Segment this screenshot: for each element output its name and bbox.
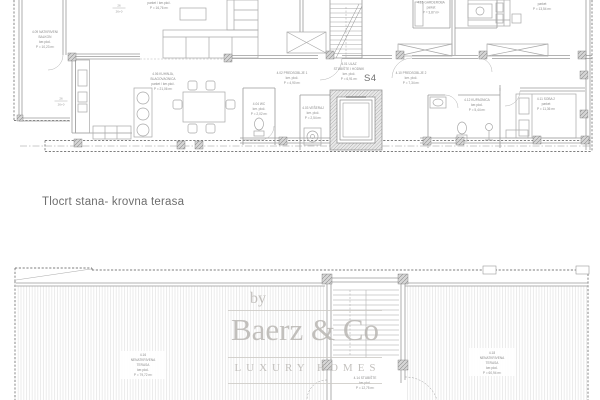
svg-text:P = 3,87 m²: P = 3,87 m² <box>423 11 440 15</box>
dim-1: 26 26+0 <box>113 4 126 14</box>
svg-text:parket / ker.ploč.: parket / ker.ploč. <box>151 82 175 86</box>
kitchen-counter <box>76 60 90 133</box>
svg-text:P = 11,36 m²: P = 11,36 m² <box>537 107 555 111</box>
svg-text:4.11 SOBA 2: 4.11 SOBA 2 <box>537 97 555 101</box>
unit-label: S4 <box>364 73 376 84</box>
room-label-predsoblje1: 4.02 PREDSOBLJE 1 ker. ploč. P = 4,90 m² <box>277 71 308 85</box>
svg-text:ker. ploč.: ker. ploč. <box>286 76 299 80</box>
svg-text:4.01 ULAZ: 4.01 ULAZ <box>341 62 356 66</box>
room-label-predsoblje2: 4.10 PREDSOBLJE 2 ker. ploč. P = 7,34 m² <box>396 71 427 85</box>
dresser <box>468 4 492 18</box>
coffee-table <box>180 8 206 20</box>
svg-text:parket / ker.ploč.: parket / ker.ploč. <box>147 1 171 5</box>
upper-room-labels: parket / ker.ploč. P = 16,76 m² 4.09 NAT… <box>32 1 555 121</box>
svg-text:P = 2,54 m²: P = 2,54 m² <box>305 116 322 120</box>
svg-text:P = 10,23 m²: P = 10,23 m² <box>36 45 54 49</box>
kitchen-island <box>134 88 152 137</box>
elevator-shaft <box>330 90 382 150</box>
svg-text:P = 79,72 m²: P = 79,72 m² <box>134 373 152 377</box>
svg-text:P = 13,54 m²: P = 13,54 m² <box>533 7 551 11</box>
room-label-ulaz: 4.01 ULAZ STUBIŠTE I HODNIK ker. ploč. P… <box>334 62 366 81</box>
svg-text:ker.ploč.: ker.ploč. <box>471 103 483 107</box>
svg-text:4.02 PREDSOBLJE 1: 4.02 PREDSOBLJE 1 <box>277 71 308 75</box>
room-label-living: parket / ker.ploč. P = 16,76 m² <box>147 1 171 10</box>
svg-text:BALKON: BALKON <box>39 35 53 39</box>
svg-text:parket: parket <box>427 6 436 10</box>
dimension-labels: 26 26+0 26 26+0 <box>55 4 126 107</box>
svg-text:4.14 STUBIŠTE: 4.14 STUBIŠTE <box>354 375 377 380</box>
apartment-floor-plan: parket / ker.ploč. P = 16,76 m² 4.09 NAT… <box>0 0 600 165</box>
wc-toilet <box>254 118 264 136</box>
svg-text:26: 26 <box>117 4 121 8</box>
svg-text:4.16: 4.16 <box>140 353 146 357</box>
svg-text:4.06 KUHINJA,: 4.06 KUHINJA, <box>152 72 174 76</box>
svg-text:P = 5,44 m²: P = 5,44 m² <box>469 108 486 112</box>
svg-text:ker. ploč.: ker. ploč. <box>253 107 266 111</box>
svg-text:NENATKRIVENA: NENATKRIVENA <box>480 356 505 360</box>
svg-text:4.15 GARDEROBA: 4.15 GARDEROBA <box>417 1 445 5</box>
room-label-balkon: 4.09 NATKRIVENI BALKON ker.ploč. P = 10,… <box>32 30 58 49</box>
svg-text:4.18: 4.18 <box>489 351 495 355</box>
svg-text:P = 4,90 m²: P = 4,90 m² <box>284 81 301 85</box>
room-label-kupaonica: 4.12 KUPAONICA ker.ploč. P = 5,44 m² <box>464 98 491 112</box>
notch-diagonal <box>16 269 91 280</box>
watermark-divider-top <box>228 310 382 311</box>
svg-text:P = 60,94 m²: P = 60,94 m² <box>483 371 501 375</box>
svg-text:ker.ploč.: ker.ploč. <box>137 368 149 372</box>
svg-text:BLAGOVAONICA: BLAGOVAONICA <box>150 77 176 81</box>
svg-text:26: 26 <box>59 97 63 101</box>
watermark-divider-bottom <box>228 383 382 384</box>
wall-posts <box>17 51 589 149</box>
drawing-title: Tlocrt stana- krovna terasa <box>42 196 184 208</box>
svg-text:ker. ploč.: ker. ploč. <box>307 111 320 115</box>
svg-text:4.04 WC: 4.04 WC <box>253 102 266 106</box>
svg-text:P = 21,06 m²: P = 21,06 m² <box>154 87 172 91</box>
svg-text:ker.ploč.: ker.ploč. <box>486 366 498 370</box>
svg-text:26+0: 26+0 <box>116 10 123 14</box>
svg-text:P = 7,34 m²: P = 7,34 m² <box>403 81 420 85</box>
bathroom-fixtures <box>430 97 493 141</box>
svg-text:ker. ploč.: ker. ploč. <box>343 72 356 76</box>
svg-text:TERASA: TERASA <box>137 363 151 367</box>
svg-text:ker.ploč.: ker.ploč. <box>39 40 51 44</box>
watermark-by: by <box>238 290 278 308</box>
staircase-upper <box>330 4 362 58</box>
svg-text:NENATKRIVENA: NENATKRIVENA <box>131 358 156 362</box>
floor-plan-sheet: parket / ker.ploč. P = 16,76 m² 4.09 NAT… <box>0 0 600 400</box>
watermark-divider-middle <box>228 357 382 358</box>
dining-table <box>173 81 235 133</box>
svg-text:P = 6,91 m²: P = 6,91 m² <box>341 77 358 81</box>
dim-2: 26 26+0 <box>55 97 68 107</box>
watermark-tagline: LUXURY HOMES <box>226 362 384 374</box>
sofa <box>163 0 258 58</box>
svg-text:P = 2,02 m²: P = 2,02 m² <box>251 112 268 116</box>
svg-text:4.03 VEŠERAJ: 4.03 VEŠERAJ <box>302 105 324 110</box>
svg-text:parket: parket <box>542 102 551 106</box>
svg-text:4.09 NATKRIVENI: 4.09 NATKRIVENI <box>32 30 58 34</box>
svg-text:P = 16,76 m²: P = 16,76 m² <box>150 6 168 10</box>
room-label-soba2: 4.11 SOBA 2 parket P = 11,36 m² <box>537 97 555 111</box>
svg-text:P = 12,75 m²: P = 12,75 m² <box>356 386 374 390</box>
svg-text:4.10 PREDSOBLJE 2: 4.10 PREDSOBLJE 2 <box>396 71 427 75</box>
svg-text:STUBIŠTE I HODNIK: STUBIŠTE I HODNIK <box>334 66 366 71</box>
room-label-wc: 4.04 WC ker. ploč. P = 2,02 m² <box>251 102 268 116</box>
room-label-veseraj: 4.03 VEŠERAJ ker. ploč. P = 2,54 m² <box>302 105 324 120</box>
washing-machine <box>304 128 321 145</box>
room-label-kuhinja: 4.06 KUHINJA, BLAGOVAONICA parket / ker.… <box>150 72 176 91</box>
svg-text:ker. ploč.: ker. ploč. <box>405 76 418 80</box>
svg-text:parket: parket <box>538 2 547 6</box>
svg-text:26+0: 26+0 <box>58 103 65 107</box>
room-label-garderoba: 4.15 GARDEROBA parket P = 3,87 m² <box>417 1 445 15</box>
room-label-soba1: parket P = 13,54 m² <box>533 2 551 11</box>
door-swings <box>48 55 520 140</box>
watermark-brand: Baerz & Co <box>222 312 388 348</box>
svg-text:4.12 KUPAONICA: 4.12 KUPAONICA <box>464 98 491 102</box>
svg-text:TERASA: TERASA <box>486 361 500 365</box>
